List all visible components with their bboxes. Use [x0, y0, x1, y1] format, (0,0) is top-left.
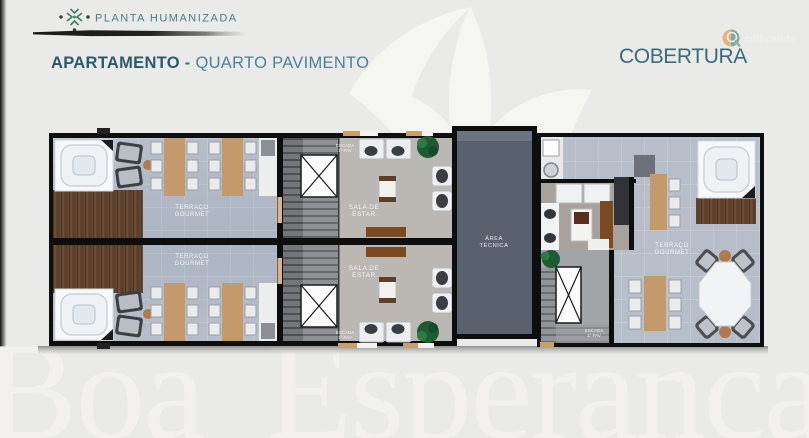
svg-text:TERRAÇO: TERRAÇO [175, 205, 209, 211]
svg-text:SALA DE: SALA DE [349, 204, 380, 211]
svg-text:ESTAR: ESTAR [352, 272, 376, 279]
svg-text:APARTAMENTO - QUARTO PAVIMENTO: APARTAMENTO - QUARTO PAVIMENTO [51, 54, 369, 72]
svg-text:COBERTURA: COBERTURA [619, 45, 747, 68]
svg-text:GOURMET: GOURMET [655, 250, 690, 256]
svg-text:edificando: edificando [744, 33, 796, 45]
svg-text:GOURMET: GOURMET [175, 212, 210, 218]
svg-text:SALA DE: SALA DE [349, 265, 380, 272]
svg-text:ÁREA: ÁREA [485, 235, 503, 242]
svg-text:TERRAÇO: TERRAÇO [655, 243, 689, 249]
svg-text:1º PAV: 1º PAV [338, 335, 352, 340]
svg-text:TERRAÇO: TERRAÇO [175, 254, 209, 260]
svg-text:ESTAR: ESTAR [352, 211, 376, 218]
svg-text:1º PAV: 1º PAV [338, 148, 352, 153]
svg-text:TÉCNICA: TÉCNICA [480, 242, 509, 249]
svg-text:1º PAV: 1º PAV [587, 333, 601, 338]
svg-text:PLANTA HUMANIZADA: PLANTA HUMANIZADA [95, 13, 238, 25]
svg-text:GOURMET: GOURMET [175, 261, 210, 267]
